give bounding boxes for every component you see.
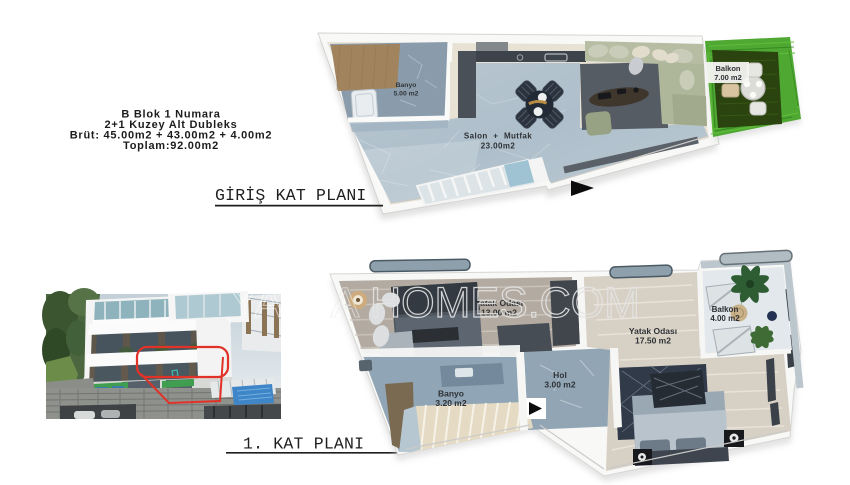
svg-text:YA: YA (229, 279, 283, 327)
svg-text:7.00 m2: 7.00 m2 (714, 73, 742, 82)
svg-text:Balkon: Balkon (715, 64, 740, 73)
svg-text:1. KAT PLANI: 1. KAT PLANI (243, 435, 364, 454)
svg-text:3.20 m2: 3.20 m2 (435, 398, 466, 408)
svg-text:Balkon: Balkon (712, 305, 739, 314)
svg-text:Hol: Hol (553, 370, 567, 380)
svg-text:17.50 m2: 17.50 m2 (635, 336, 671, 346)
svg-text:4.00 m2: 4.00 m2 (710, 314, 740, 323)
svg-text:Banyo: Banyo (438, 389, 464, 399)
svg-text:5.00 m2: 5.00 m2 (394, 91, 419, 98)
svg-text:Salon + Mutfak: Salon + Mutfak (464, 132, 532, 141)
svg-text:3.00 m2: 3.00 m2 (544, 380, 575, 390)
svg-text:A: A (331, 279, 360, 327)
svg-text:Toplam:92.00m2: Toplam:92.00m2 (123, 140, 219, 152)
svg-text:Yatak Odası: Yatak Odası (629, 326, 677, 336)
svg-text:23.00m2: 23.00m2 (481, 142, 516, 151)
svg-text:GİRİŞ KAT PLANI: GİRİŞ KAT PLANI (215, 186, 367, 205)
svg-text:Banyo: Banyo (396, 82, 417, 89)
svg-text:HOMES.COM: HOMES.COM (370, 279, 640, 327)
